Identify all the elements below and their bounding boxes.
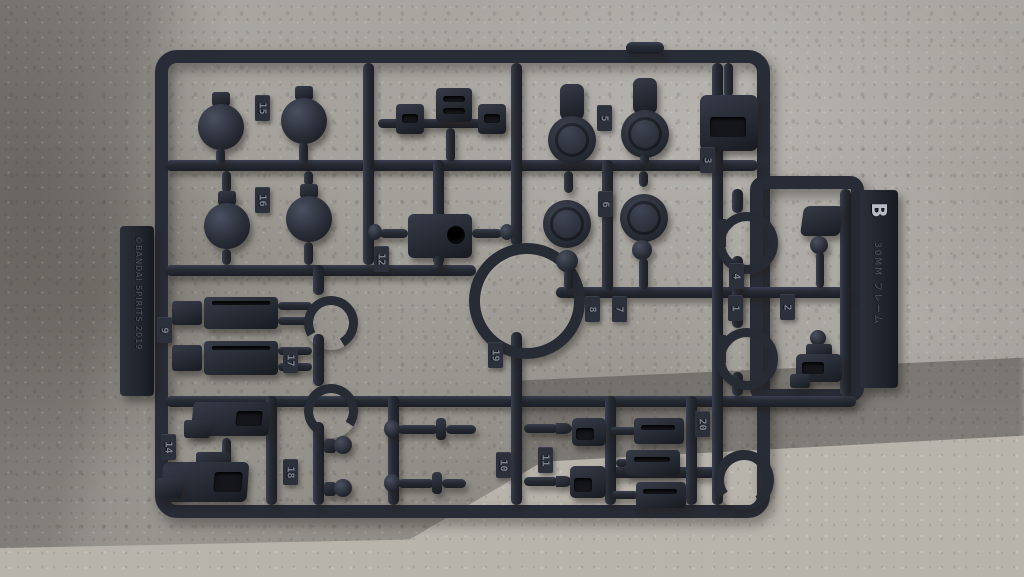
runner-side-label: 30MM フレーム	[872, 242, 885, 326]
gate-tab: B 30MM フレーム	[860, 190, 898, 388]
runner-stem	[564, 171, 573, 193]
part-number-label: 3	[702, 157, 713, 163]
runner-bar	[602, 160, 613, 292]
arm-block-part	[204, 297, 278, 329]
ball-joint-part	[204, 203, 250, 249]
part-number-label: 9	[159, 327, 170, 333]
part-number-label: 2	[782, 304, 793, 310]
gate-letter-label: B	[867, 199, 891, 221]
part-number-tag: 18	[283, 459, 298, 485]
ball-joint-part	[632, 240, 652, 260]
cylinder-part	[633, 78, 657, 114]
photo-scene: B 30MM フレーム ©BANDAI SPIRITS 2019	[0, 0, 1024, 577]
runner-stem	[380, 229, 408, 238]
runner-stem	[222, 249, 231, 265]
claw-part	[572, 418, 606, 446]
runner-stem	[612, 491, 638, 499]
copyright-label: ©BANDAI SPIRITS 2019	[134, 236, 143, 350]
runner-bar	[732, 189, 743, 213]
runner-bar	[313, 265, 324, 295]
runner-stem	[640, 154, 649, 164]
arm-block-part	[204, 341, 278, 375]
part-number-label: 17	[285, 354, 296, 366]
runner-bar	[166, 160, 758, 171]
part-number-label: 16	[257, 194, 268, 206]
shoulder-joint-part	[800, 206, 844, 236]
clip-part	[478, 104, 506, 134]
box-part	[636, 482, 686, 508]
runner-stem	[446, 425, 476, 434]
part-number-tag: 11	[538, 447, 553, 473]
pin-head	[500, 224, 514, 240]
link-ball-part	[334, 436, 352, 454]
runner-bar	[626, 42, 664, 54]
runner-stem	[639, 258, 648, 290]
part-number-tag: 15	[255, 95, 270, 121]
disc-joint-part	[543, 200, 591, 248]
arm-block-part	[172, 345, 202, 371]
clip-part	[396, 104, 424, 134]
part-number-tag: 6	[598, 191, 613, 217]
clip-part	[436, 88, 472, 122]
part-number-label: 7	[614, 306, 625, 312]
runner-stem	[564, 270, 573, 290]
part-number-label: 4	[731, 273, 742, 279]
runner-stem	[724, 63, 733, 97]
ball-joint-part	[556, 250, 578, 272]
link-ball-part	[334, 479, 352, 497]
part-number-label: 10	[498, 459, 509, 471]
runner-bar	[511, 63, 522, 246]
pin-flange	[432, 472, 442, 494]
runner-stem	[524, 477, 558, 486]
runner-stem	[524, 424, 558, 433]
ball-joint-part	[286, 196, 332, 242]
runner-stem	[398, 479, 434, 488]
runner-stem	[610, 427, 636, 435]
part-number-tag: 17	[283, 347, 298, 373]
part-number-tag: 1	[728, 295, 743, 321]
part-number-tag: 3	[700, 147, 715, 173]
box-part	[634, 418, 684, 444]
box-part	[626, 450, 680, 476]
copyright-tab: ©BANDAI SPIRITS 2019	[120, 226, 154, 396]
part-number-tag: 12	[374, 246, 389, 272]
arm-block-part	[172, 301, 202, 325]
clamp-part	[700, 95, 758, 151]
part-number-label: 18	[285, 466, 296, 478]
part-number-tag: 14	[161, 434, 176, 460]
part-number-tag: 20	[695, 411, 710, 437]
disc-joint-part	[548, 116, 596, 164]
block-hole	[447, 226, 465, 244]
claw-part	[570, 466, 606, 498]
part-number-label: 11	[540, 454, 551, 466]
part-number-tag: 10	[496, 452, 511, 478]
part-number-tag: 19	[488, 342, 503, 368]
runner-stem	[472, 229, 502, 238]
part-number-label: 14	[163, 441, 174, 453]
disc-joint-part	[621, 110, 669, 158]
part-number-label: 19	[490, 349, 501, 361]
runner-stem	[398, 425, 438, 434]
runner-stem	[442, 479, 466, 488]
runner-stem	[446, 128, 455, 162]
part-number-label: 8	[587, 306, 598, 312]
foot-heel	[184, 420, 210, 438]
part-number-tag: 5	[597, 105, 612, 131]
cylinder-part	[560, 84, 584, 120]
part-number-label: 5	[599, 115, 610, 121]
ball-joint-part	[281, 98, 327, 144]
runner-stem	[216, 148, 225, 164]
d-ring-part	[716, 212, 778, 274]
part-number-tag: 2	[780, 294, 795, 320]
part-number-label: 6	[600, 201, 611, 207]
part-number-tag: 8	[585, 296, 600, 322]
foot-heel	[156, 478, 182, 498]
parts-runner: B 30MM フレーム ©BANDAI SPIRITS 2019	[0, 0, 1024, 577]
runner-stem	[434, 256, 443, 268]
runner-stem	[222, 171, 231, 193]
pin-flange	[436, 418, 446, 440]
part-number-tag: 4	[729, 263, 744, 289]
ankle-toe	[790, 374, 810, 388]
d-ring-part	[716, 328, 778, 390]
part-number-tag: 16	[255, 187, 270, 213]
part-number-tag: 9	[157, 317, 172, 343]
part-number-tag: 7	[612, 296, 627, 322]
part-number-label: 20	[697, 418, 708, 430]
runner-stem	[304, 242, 313, 265]
pin-tip	[556, 423, 572, 434]
runner-stem	[299, 142, 308, 164]
disc-joint-part	[620, 194, 668, 242]
runner-bar	[556, 287, 852, 298]
part-number-label: 15	[257, 102, 268, 114]
ball-joint-part	[198, 104, 244, 150]
runner-bar	[605, 396, 616, 505]
runner-stem	[816, 252, 824, 288]
runner-stem	[639, 171, 648, 187]
part-number-label: 12	[376, 253, 387, 265]
part-number-label: 1	[730, 305, 741, 311]
